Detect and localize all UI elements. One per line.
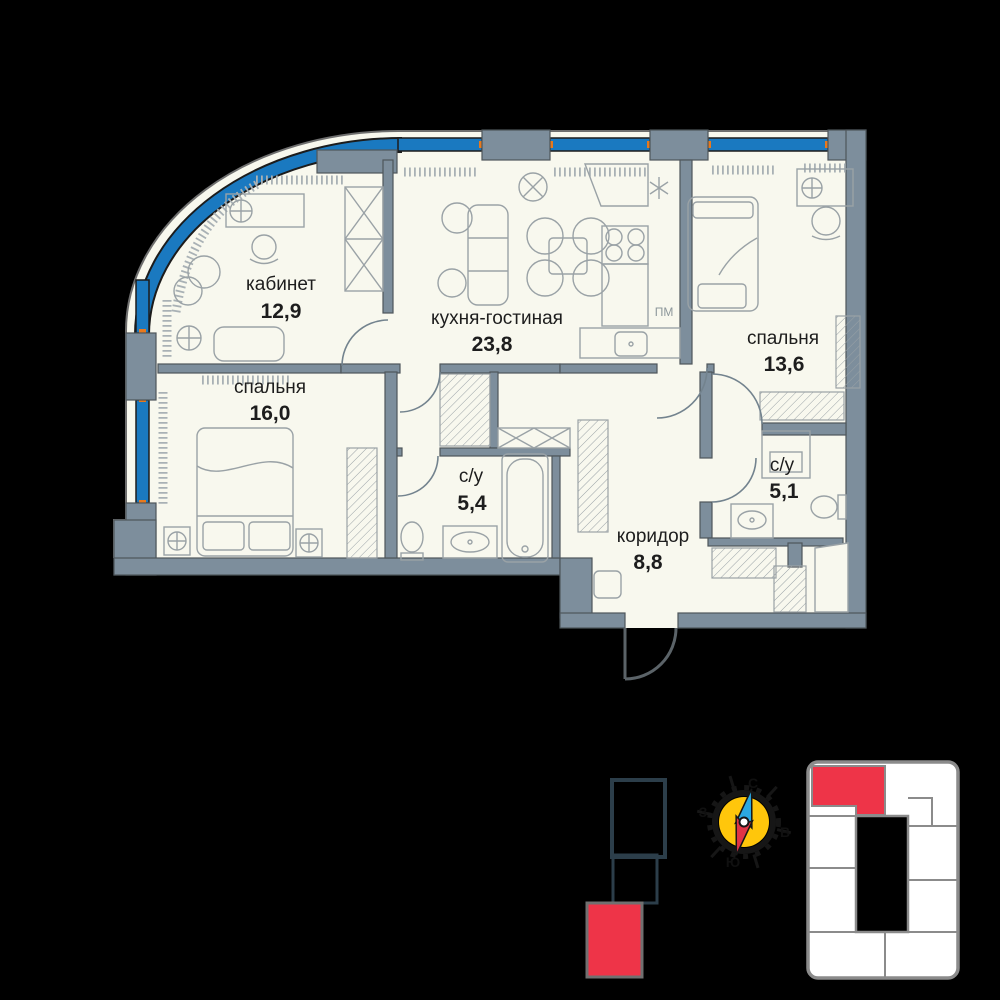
- wardrobe-icon: [760, 392, 844, 420]
- room-label-bath-main: с/у: [459, 466, 484, 487]
- compass-west-label: З: [699, 804, 708, 820]
- room-area-kitchen-living: 23,8: [472, 333, 513, 356]
- window-left-2: [136, 400, 149, 503]
- room-area-hall: 8,8: [633, 551, 663, 574]
- shelf-icon: [712, 548, 776, 578]
- compass-south-label: Ю: [726, 854, 740, 870]
- section-box-highlight: [587, 903, 642, 977]
- room-area-bedroom-left: 16,0: [250, 402, 291, 425]
- building-courtyard: [856, 816, 908, 932]
- window-top-3: [708, 138, 828, 151]
- shelf-icon: [774, 566, 806, 612]
- room-label-hall: коридор: [617, 526, 690, 547]
- floor-lamp-icon: [177, 326, 201, 350]
- room-label-office: кабинет: [246, 274, 316, 295]
- cabinet-icon: [498, 428, 570, 448]
- room-area-office: 12,9: [261, 300, 302, 323]
- room-label-bedroom-left: спальня: [234, 377, 306, 398]
- wardrobe-icon: [440, 374, 490, 446]
- room-label-bath-guest: с/у: [770, 455, 795, 476]
- window-left-1: [136, 280, 149, 333]
- room-area-bedroom-right: 13,6: [764, 353, 805, 376]
- compass-north-label: С: [748, 775, 758, 791]
- wardrobe-icon: [347, 448, 377, 558]
- window-top-1: [398, 138, 482, 151]
- compass-east-label: В: [780, 824, 790, 840]
- desk-lamp-icon: [230, 200, 252, 222]
- room-area-bath-guest: 5,1: [769, 480, 799, 503]
- closet-door-icon: [815, 543, 848, 612]
- room-label-kitchen-living: кухня-гостиная: [431, 308, 563, 329]
- wardrobe-icon: [836, 316, 860, 388]
- dishwasher-label: ПМ: [655, 305, 674, 319]
- wardrobe-icon: [578, 420, 608, 532]
- room-label-bedroom-right: спальня: [747, 328, 819, 349]
- building-key-plan: [808, 762, 958, 978]
- window-top-2: [550, 138, 650, 151]
- room-area-bath-main: 5,4: [457, 492, 487, 515]
- floor-plan-canvas: кабинет 12,9 кухня-гостиная 23,8 спальня…: [0, 0, 1000, 1000]
